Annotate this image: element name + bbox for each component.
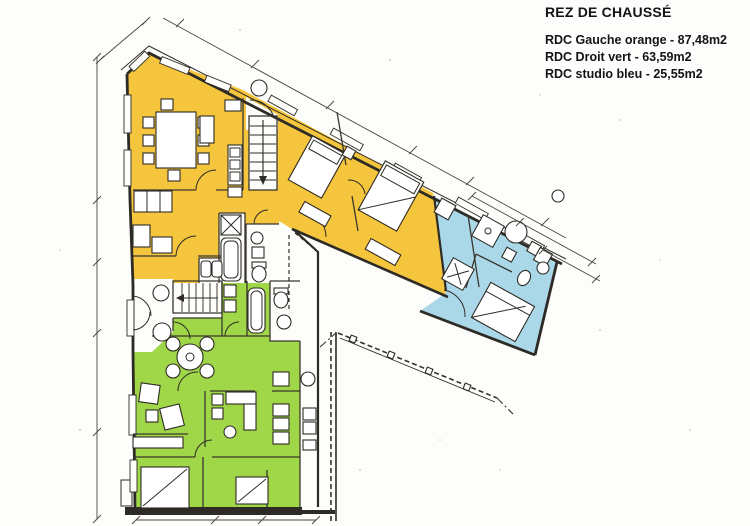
- armchair: [139, 383, 160, 404]
- wc-sink: [277, 315, 291, 329]
- fridge: [303, 408, 316, 420]
- stool: [224, 426, 236, 438]
- kitchen-unit: [273, 432, 289, 444]
- chair: [166, 364, 180, 378]
- sideboard: [200, 116, 214, 143]
- kitchen-sink: [301, 372, 315, 386]
- toilet: [274, 292, 288, 308]
- chair: [200, 364, 214, 378]
- sofa: [134, 191, 172, 212]
- coffee-table: [152, 237, 172, 253]
- chair: [212, 408, 223, 419]
- entry-column: [251, 80, 267, 96]
- chair: [200, 337, 214, 351]
- sink: [201, 261, 211, 277]
- wc-cabinet: [252, 247, 264, 258]
- chair: [166, 337, 180, 351]
- stairs-green: [176, 283, 218, 312]
- oven: [303, 422, 316, 434]
- washing-machine: [224, 285, 236, 297]
- flue-column: [552, 190, 564, 202]
- legend-orange: RDC Gauche orange - 87,48m2: [545, 34, 727, 47]
- desk-return: [244, 404, 256, 430]
- dryer: [224, 300, 236, 312]
- legend-blue: RDC studio bleu - 25,55m2: [545, 68, 727, 81]
- chair: [143, 153, 154, 164]
- chair: [161, 99, 173, 110]
- legend-green: RDC Droit vert - 63,59m2: [545, 51, 727, 64]
- chair: [212, 394, 223, 405]
- chair: [143, 117, 154, 128]
- desk: [226, 392, 256, 404]
- side-table: [146, 410, 158, 422]
- toilet: [252, 266, 266, 282]
- chair: [198, 153, 209, 164]
- floorplan-page: REZ DE CHAUSSÉ RDC Gauche orange - 87,48…: [0, 0, 750, 526]
- kitchen-appliance: [228, 187, 242, 197]
- sideboard: [133, 437, 183, 448]
- kitchen-unit: [273, 404, 289, 416]
- chair: [168, 170, 180, 181]
- chair: [143, 135, 154, 146]
- hall-sink: [153, 285, 169, 301]
- cupboard: [303, 440, 316, 450]
- dining-table: [156, 112, 196, 168]
- legend-block: REZ DE CHAUSSÉ RDC Gauche orange - 87,48…: [545, 4, 727, 85]
- wc-sink: [251, 232, 263, 244]
- kitchen-unit: [273, 372, 289, 386]
- kitchen-upper: [225, 100, 241, 111]
- round-table: [177, 344, 203, 370]
- sink: [212, 261, 222, 277]
- armchair: [133, 225, 150, 247]
- page-title: REZ DE CHAUSSÉ: [545, 4, 727, 20]
- kitchen-unit: [273, 418, 289, 430]
- bath-sink: [537, 262, 549, 274]
